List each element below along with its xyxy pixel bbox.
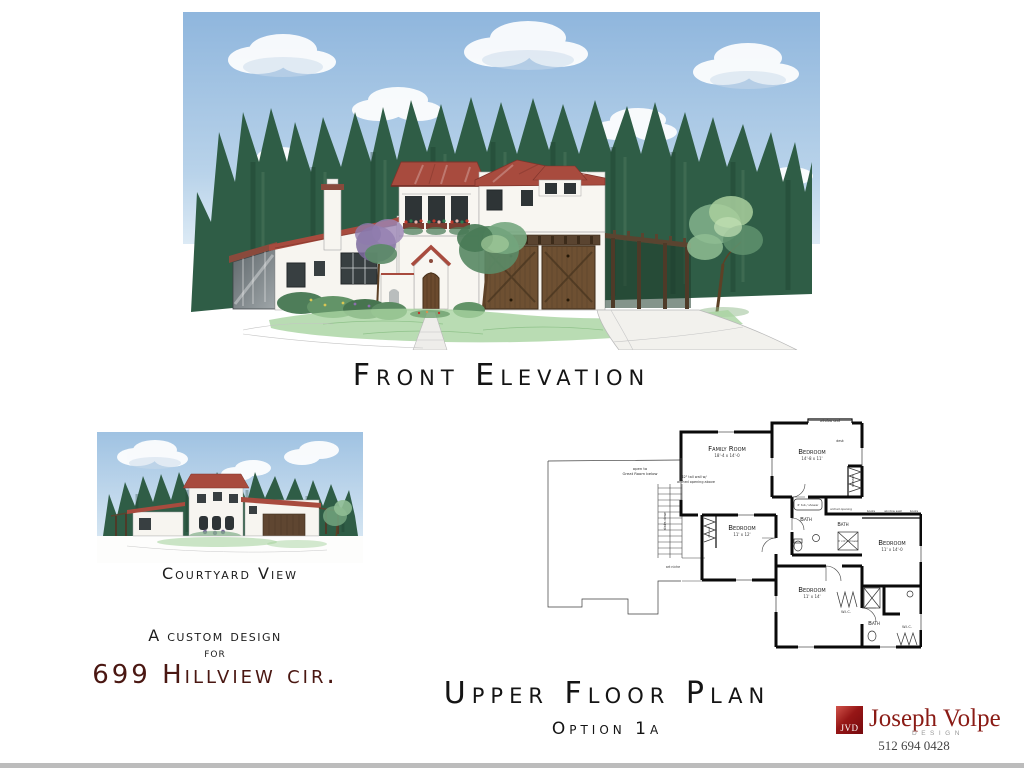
bedroom-right-label: Bedroom <box>878 539 905 547</box>
books-label-2: books <box>910 509 919 513</box>
courtyard-view-illustration <box>97 432 363 563</box>
front-elevation-title: Front Elevation <box>183 358 820 393</box>
scan-edge <box>0 763 1024 768</box>
window-seat-label-2: window seat <box>884 509 902 513</box>
window-seat-label: window seat <box>820 419 841 423</box>
fixtures <box>794 499 913 641</box>
art-niche-label: art niche <box>666 565 680 569</box>
courtyard-ground <box>97 536 363 563</box>
family-room-dim: 18'-4 x 14'-0 <box>714 453 740 458</box>
courtyard-view-caption: Courtyard View <box>80 564 380 583</box>
wic-label-1: W.I.C. <box>841 610 851 614</box>
project-address: 699 Hillview cir. <box>65 660 365 690</box>
dresser-label-1: dresser <box>851 474 855 487</box>
wic-label-2: W.I.C. <box>902 625 912 629</box>
wall-note-2: arched opening above <box>677 480 715 484</box>
books-label-1: books <box>867 509 876 513</box>
jvd-logo-initials: JVD <box>840 723 858 733</box>
upper-floor-plan-drawing: Family Room 18'-4 x 14'-0 Bedroom 14'-8 … <box>540 418 922 663</box>
floor-plan-svg: Family Room 18'-4 x 14'-0 Bedroom 14'-8 … <box>540 418 922 663</box>
bedroom-mid-label: Bedroom <box>728 524 755 532</box>
bath-2-label: Bath <box>837 522 848 528</box>
door-arcs <box>762 484 876 622</box>
tagline-line-2: for <box>65 646 365 661</box>
bath-3-label: Bath <box>868 621 880 627</box>
jvd-logo-mark: JVD <box>836 706 863 734</box>
stairs-down-label: stairs down <box>663 512 667 530</box>
courtyard-svg <box>97 432 363 563</box>
desk-label: desk <box>836 439 844 443</box>
bath-1-label: Bath <box>800 517 812 523</box>
floor-plan-option: Option 1a <box>407 719 807 739</box>
upper-floor-plan-title: Upper Floor Plan <box>407 676 807 711</box>
bedroom-bottom-dim: 11' x 14' <box>803 594 820 599</box>
grounds <box>243 309 797 350</box>
wall-note-1: 42" tall wall w/ <box>681 475 707 479</box>
bedroom-top-label: Bedroom <box>798 448 825 456</box>
bedroom-top-dim: 14'-8 x 11' <box>801 456 822 461</box>
pergola <box>605 230 691 309</box>
tagline-line-1: A custom design <box>65 626 365 645</box>
dresser-label-2: dresser <box>707 526 711 538</box>
shower-label: 4' x 6'-4 shower <box>838 539 859 543</box>
designer-name: Joseph Volpe <box>869 705 1019 733</box>
presentation-sheet: Front Elevation <box>0 0 1024 768</box>
bedroom-mid-dim: 11' x 12' <box>733 532 750 537</box>
designer-phone: 512 694 0428 <box>858 738 970 754</box>
designer-subtitle: DESIGN <box>912 730 964 737</box>
front-elevation-svg <box>183 12 820 350</box>
arched-opening-label: arched opening <box>830 507 852 511</box>
bedroom-right-dim: 11' x 14'-0 <box>881 547 903 552</box>
open-below-outline <box>548 460 681 614</box>
great-room-note: Great Room below <box>622 471 657 476</box>
front-elevation-illustration <box>183 12 820 350</box>
tub-shower-label: 6' tub / shower <box>798 503 820 507</box>
bedroom-bottom-label: Bedroom <box>798 586 825 594</box>
chimney <box>321 179 344 250</box>
cloud-shadow <box>129 457 181 469</box>
family-room-label: Family Room <box>708 445 746 453</box>
